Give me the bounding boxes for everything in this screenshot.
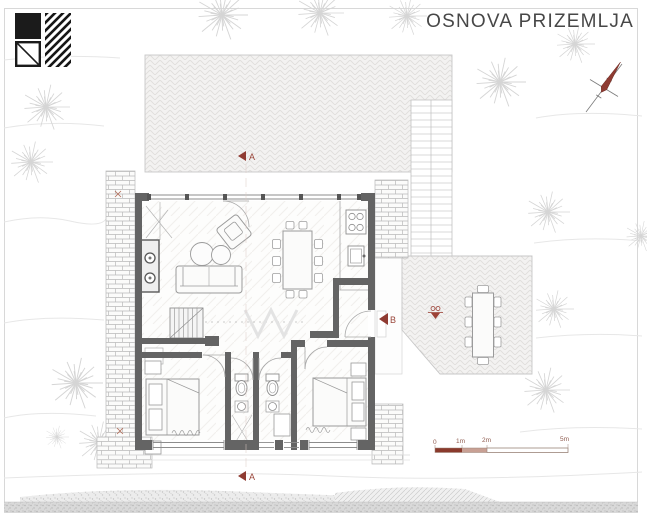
- window-bedroom1: [153, 440, 224, 450]
- window-bedroom2: [309, 440, 357, 450]
- scale-label-2m: 2m: [482, 437, 491, 444]
- bottom-ground-band: [4, 502, 638, 513]
- section-label-top: A: [249, 152, 255, 162]
- wall-bath-left: [225, 352, 231, 450]
- brick-band-right-top: [375, 180, 408, 258]
- cooktop: [346, 210, 366, 234]
- scale-label-1m: 1m: [456, 438, 465, 445]
- legend: [15, 13, 71, 67]
- scale-segment-dark: [435, 448, 462, 453]
- slope-hatch-band: [335, 487, 500, 502]
- glazed-facade-top: [147, 194, 361, 200]
- wash-basin: [266, 401, 279, 412]
- wall-bedroom2-top-a: [291, 340, 305, 347]
- north-arrow: [586, 62, 622, 112]
- window-bath1: [259, 443, 274, 448]
- wall-entry-side: [333, 285, 339, 338]
- wall-top-corner-left: [135, 193, 149, 201]
- brick-band-left: [106, 171, 135, 468]
- entry-step: [377, 311, 386, 337]
- section-label-entry: B: [390, 315, 396, 325]
- scale-label-5m: 5m: [560, 436, 569, 443]
- kitchen-sink: [348, 246, 366, 266]
- legend-hatch-insulation-swatch: [45, 13, 71, 67]
- wall-bedroom2-top-b: [327, 340, 368, 347]
- right-terrace: [375, 256, 532, 374]
- wall-entry-top: [333, 278, 375, 285]
- section-label-bottom: A: [249, 472, 255, 482]
- wall-bedroom1-top: [142, 352, 202, 358]
- upper-terrace-paving: [145, 55, 452, 172]
- drawing-title: OSNOVA PRIZEMLJA: [426, 11, 634, 32]
- toilet: [266, 374, 279, 396]
- coffee-tables: [191, 243, 231, 266]
- north-needle: [601, 62, 620, 92]
- legend-window-opening-swatch: [16, 42, 40, 66]
- scale-segment-open: [487, 448, 568, 453]
- ground-texture-bands: [4, 487, 638, 513]
- nightstand: [145, 361, 161, 374]
- right-terrace-paving: [402, 256, 532, 374]
- sofa: [176, 266, 242, 293]
- scale-bar: 0 1m 2m 5m: [433, 436, 569, 453]
- wall-left: [135, 193, 142, 450]
- nightstand: [351, 428, 366, 440]
- nightstand: [351, 363, 366, 376]
- legend-solid-wall-swatch: [15, 13, 41, 39]
- wall-bath-divider: [253, 352, 259, 450]
- wall-bath-right: [291, 345, 297, 450]
- house: [97, 171, 410, 468]
- scale-label-0: 0: [433, 439, 437, 446]
- outdoor-table: [473, 293, 494, 357]
- floor-plan-canvas: A A B 0 1m 2m 5m: [0, 0, 647, 516]
- wall-entry-bottom: [310, 331, 339, 338]
- scale-segment-light: [462, 448, 487, 453]
- exterior-stair-upper: [411, 100, 452, 256]
- wall-right-upper: [368, 201, 375, 310]
- wall-right-lower: [368, 337, 375, 450]
- washing-machine: [274, 414, 290, 436]
- section-cut-marker-bottom: A: [238, 471, 255, 482]
- wall-top-corner-right: [361, 193, 375, 201]
